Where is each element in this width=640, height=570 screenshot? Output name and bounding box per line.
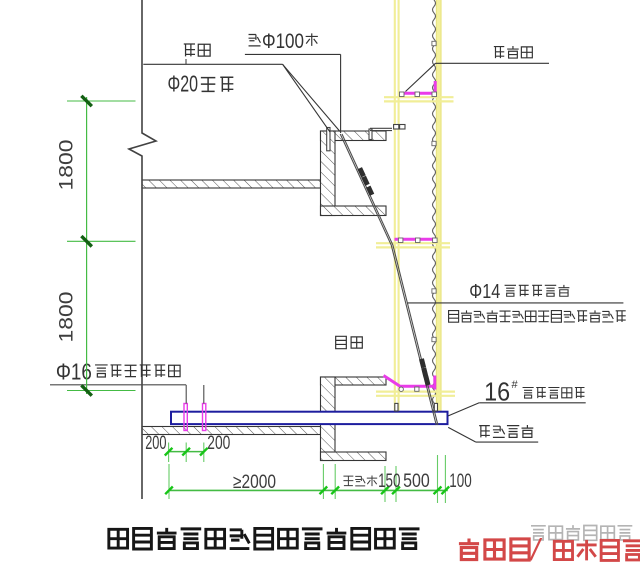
svg-text:/: / [529, 532, 543, 567]
svg-text:1800: 1800 [56, 139, 78, 190]
svg-text:100: 100 [449, 471, 471, 492]
svg-text:≥2000: ≥2000 [233, 472, 276, 493]
svg-text:150: 150 [378, 471, 400, 492]
svg-text:16: 16 [484, 377, 510, 407]
svg-text:Φ100: Φ100 [262, 30, 304, 53]
svg-text:Φ14: Φ14 [469, 280, 500, 303]
svg-text:#: # [512, 379, 519, 391]
svg-text:Φ20: Φ20 [168, 70, 199, 96]
svg-text:500: 500 [403, 471, 430, 492]
svg-text:200: 200 [207, 433, 230, 454]
svg-text:200: 200 [145, 433, 166, 454]
svg-text:1800: 1800 [56, 291, 78, 342]
